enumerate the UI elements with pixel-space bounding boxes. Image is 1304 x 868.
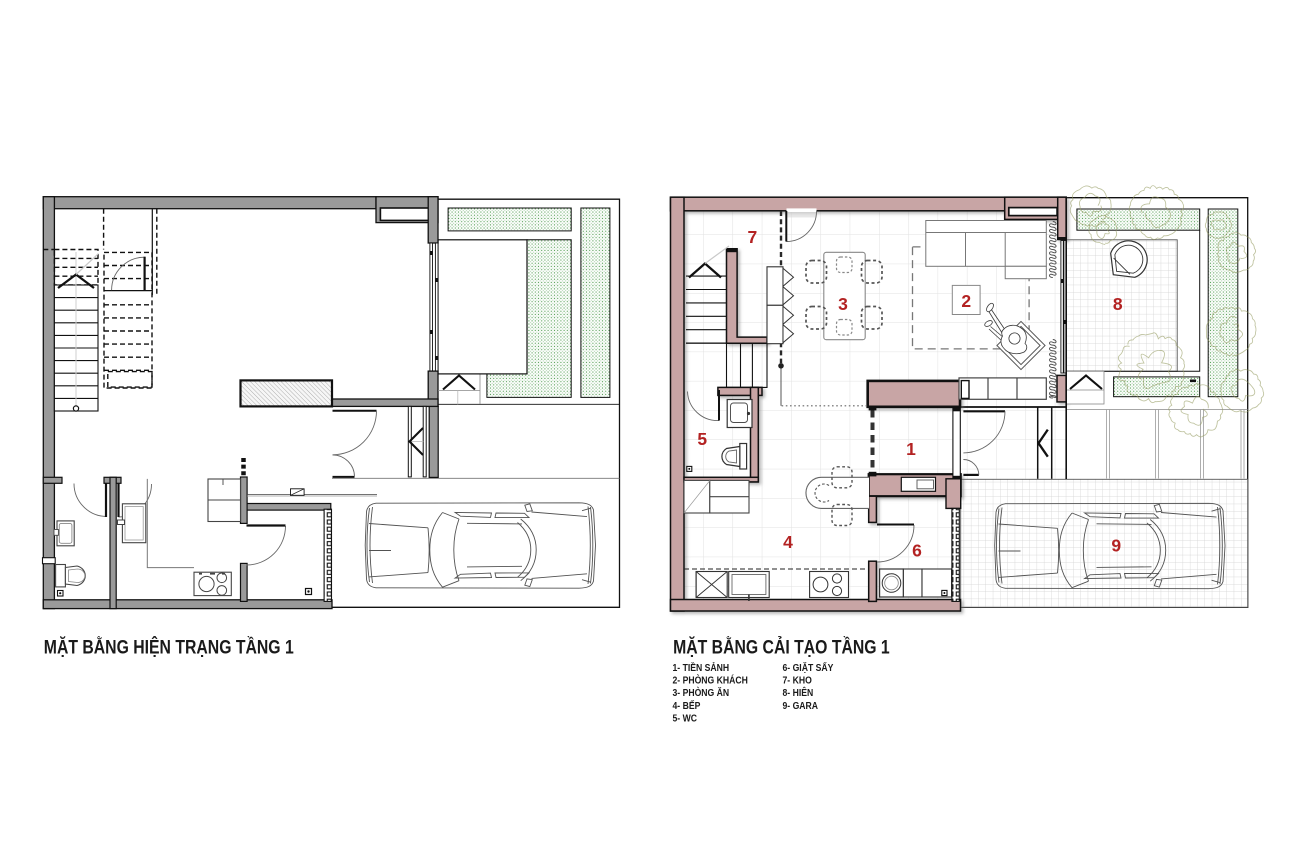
svg-text:7- KHO: 7- KHO [783, 675, 812, 687]
svg-text:6- GIẶT SẤY: 6- GIẶT SẤY [783, 662, 834, 674]
svg-text:8- HIÊN: 8- HIÊN [783, 686, 814, 699]
svg-text:8: 8 [1113, 294, 1123, 314]
svg-text:4: 4 [783, 532, 793, 552]
svg-text:7: 7 [748, 227, 758, 247]
svg-text:5: 5 [697, 429, 707, 449]
svg-text:2- PHÒNG KHÁCH: 2- PHÒNG KHÁCH [673, 674, 749, 687]
svg-text:9: 9 [1111, 536, 1121, 556]
svg-text:9- GARA: 9- GARA [783, 700, 819, 712]
svg-text:4- BẾP: 4- BẾP [673, 700, 701, 712]
svg-text:6: 6 [912, 541, 922, 561]
svg-text:3- PHÒNG ĂN: 3- PHÒNG ĂN [673, 686, 730, 699]
svg-text:3: 3 [838, 294, 848, 314]
svg-text:MẶT BẰNG CẢI TẠO TẦNG 1: MẶT BẰNG CẢI TẠO TẦNG 1 [673, 635, 890, 658]
svg-text:MẶT BẰNG HIỆN TRẠNG TẦNG 1: MẶT BẰNG HIỆN TRẠNG TẦNG 1 [44, 635, 294, 658]
svg-text:2: 2 [961, 291, 971, 311]
svg-text:5- WC: 5- WC [673, 713, 698, 725]
svg-text:1: 1 [906, 439, 916, 459]
svg-text:1- TIỀN SẢNH: 1- TIỀN SẢNH [673, 661, 730, 674]
